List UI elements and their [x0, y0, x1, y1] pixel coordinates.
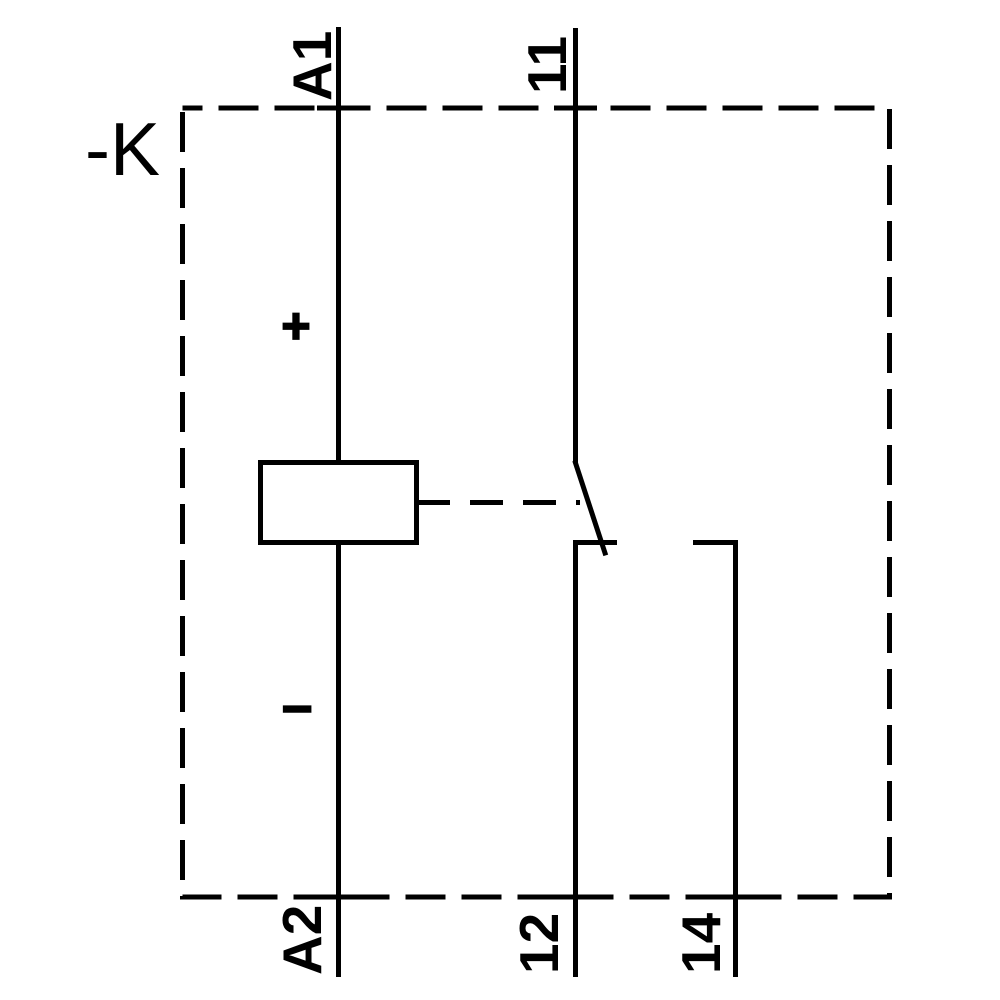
terminal-label-a2: A2	[271, 905, 333, 975]
schematic-canvas: -K A1 11 A2 12 14 + −	[0, 0, 1000, 1000]
terminal-label-14: 14	[670, 912, 732, 974]
terminal-label-12: 12	[508, 913, 570, 974]
relay-schematic: -K A1 11 A2 12 14 + −	[0, 0, 1000, 1000]
polarity-minus-sign: −	[281, 679, 313, 739]
terminal-label-a1: A1	[281, 31, 343, 101]
polarity-plus-sign: +	[281, 298, 310, 354]
relay-coil-symbol	[261, 463, 417, 543]
device-label: -K	[85, 107, 160, 191]
terminal-label-11: 11	[516, 36, 578, 94]
